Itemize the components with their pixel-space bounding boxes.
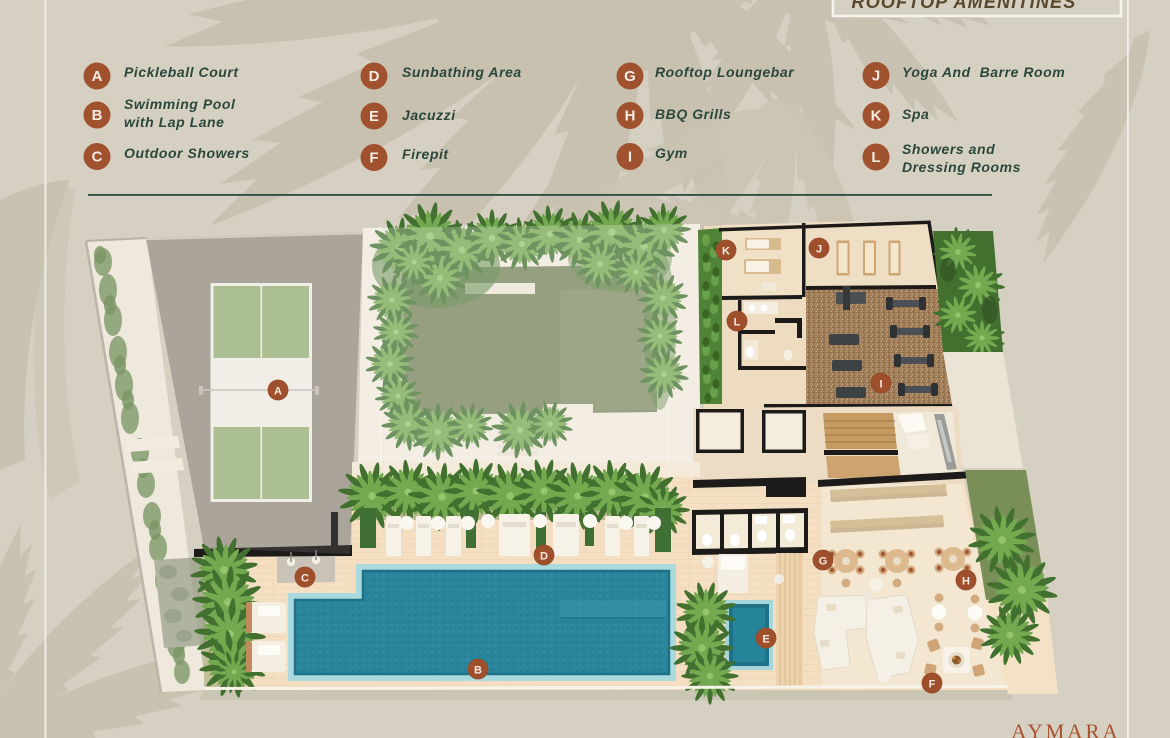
svg-text:Outdoor Showers: Outdoor Showers xyxy=(124,145,250,161)
svg-text:F: F xyxy=(929,679,936,691)
svg-text:J: J xyxy=(872,68,880,85)
svg-text:Pickleball Court: Pickleball Court xyxy=(124,64,239,80)
svg-text:Jacuzzi: Jacuzzi xyxy=(402,107,456,123)
svg-text:C: C xyxy=(92,149,103,166)
svg-text:Dressing Rooms: Dressing Rooms xyxy=(902,159,1021,175)
svg-text:Sunbathing Area: Sunbathing Area xyxy=(402,64,522,80)
svg-text:A: A xyxy=(274,386,282,398)
svg-text:G: G xyxy=(624,68,636,85)
svg-text:H: H xyxy=(625,108,636,125)
svg-text:L: L xyxy=(871,149,880,166)
svg-text:D: D xyxy=(369,68,380,85)
svg-text:E: E xyxy=(762,634,769,646)
svg-text:Swimming Pool: Swimming Pool xyxy=(124,96,236,112)
svg-text:G: G xyxy=(819,556,828,568)
svg-text:ROOFTOP AMENITINES: ROOFTOP AMENITINES xyxy=(852,0,1077,12)
svg-text:F: F xyxy=(369,150,378,167)
svg-text:K: K xyxy=(871,108,882,125)
svg-text:L: L xyxy=(734,317,741,329)
svg-text:I: I xyxy=(879,379,882,391)
svg-text:C: C xyxy=(301,573,309,585)
svg-text:H: H xyxy=(962,576,970,588)
svg-text:AYMARA: AYMARA xyxy=(1011,720,1120,738)
svg-text:A: A xyxy=(92,68,103,85)
svg-text:with Lap Lane: with Lap Lane xyxy=(124,114,225,130)
svg-text:BBQ Grills: BBQ Grills xyxy=(655,106,731,122)
svg-text:J: J xyxy=(816,244,822,256)
svg-text:Spa: Spa xyxy=(902,106,929,122)
svg-text:Firepit: Firepit xyxy=(402,146,449,162)
svg-text:D: D xyxy=(540,551,548,563)
svg-text:E: E xyxy=(369,108,379,125)
svg-text:Gym: Gym xyxy=(655,145,688,161)
svg-text:B: B xyxy=(474,665,482,677)
svg-text:I: I xyxy=(628,149,632,166)
svg-text:Yoga And Barre Room: Yoga And Barre Room xyxy=(902,64,1065,80)
svg-text:K: K xyxy=(722,246,730,258)
svg-text:Rooftop Loungebar: Rooftop Loungebar xyxy=(655,64,795,80)
svg-text:B: B xyxy=(92,107,103,124)
svg-text:Showers and: Showers and xyxy=(902,141,995,157)
